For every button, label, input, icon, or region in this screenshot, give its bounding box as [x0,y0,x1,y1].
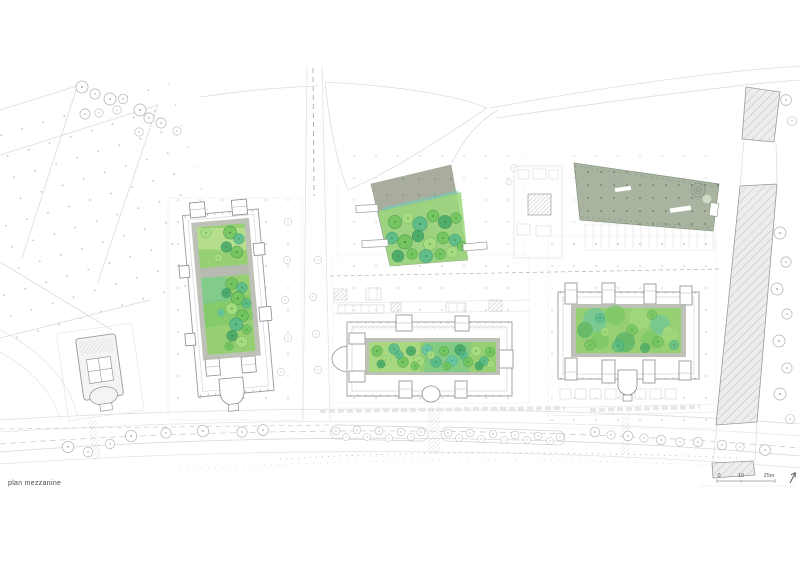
north-arrow-icon [790,473,796,484]
scale-label-0: 0 [717,473,720,479]
tram-corridor-east [712,87,780,478]
courtyard-west [191,218,261,361]
building-south-center [332,315,513,402]
plan-caption: plan mezzanine [8,480,61,487]
site-plan-drawing: 0 10 25m [0,0,800,566]
apse-south [618,370,637,395]
courtyard-east [571,304,686,357]
scale-label-10: 10 [738,473,744,479]
tree-column-east [771,95,797,424]
courtyard-center [365,338,500,375]
scale-label-25m: 25m [764,473,775,479]
apse-south [422,386,440,402]
roof-hatch-patch [608,174,623,187]
